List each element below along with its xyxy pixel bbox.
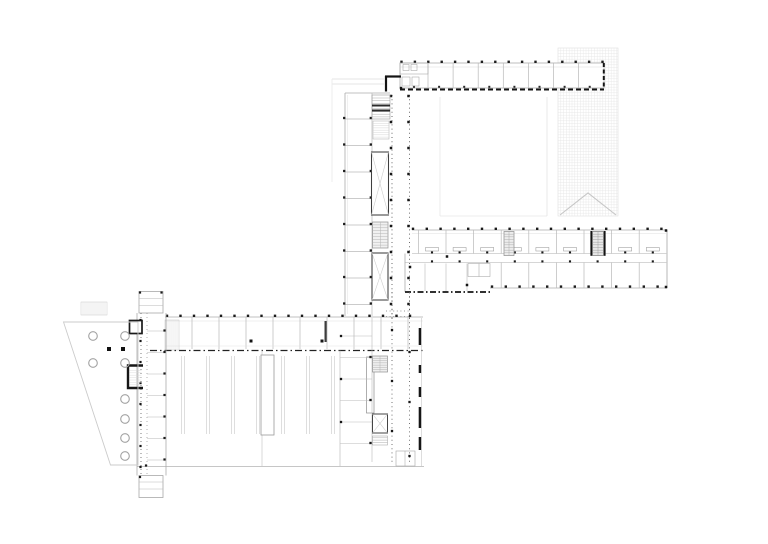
column-ticks xyxy=(587,285,589,287)
jamb-ticks xyxy=(163,394,165,396)
corridor-piers xyxy=(597,260,599,262)
column-ticks xyxy=(453,228,455,230)
piers xyxy=(466,284,469,287)
east-pier-wall xyxy=(419,387,422,397)
bench-row xyxy=(646,248,659,252)
jamb-ticks xyxy=(163,415,165,417)
corridor-piers xyxy=(569,260,571,262)
corridor-piers xyxy=(431,251,433,253)
corridor-piers xyxy=(514,260,516,262)
north-wing-door-jambs xyxy=(463,86,465,88)
jamb-ticks xyxy=(343,196,345,198)
layer-south-band xyxy=(150,315,423,351)
column-ticks xyxy=(260,315,262,317)
jamb-ticks xyxy=(343,170,345,172)
column-ticks xyxy=(601,285,603,287)
corridor-piers xyxy=(390,121,393,124)
column-ticks xyxy=(179,315,181,317)
north-wing-door-jambs xyxy=(488,86,490,88)
column-ticks xyxy=(619,228,621,230)
column-ticks xyxy=(605,228,607,230)
piers xyxy=(145,464,147,466)
shelving-core xyxy=(372,95,390,119)
corridor-piers xyxy=(624,251,626,253)
north-wing-column-ticks xyxy=(601,61,603,63)
jamb-ticks xyxy=(163,329,165,331)
jamb-ticks xyxy=(370,249,372,251)
column-ticks xyxy=(233,315,235,317)
pier xyxy=(400,87,402,89)
north-wing-door-jambs xyxy=(564,86,566,88)
corridor-piers xyxy=(407,199,410,202)
piers xyxy=(369,442,371,444)
column-ticks xyxy=(328,315,330,317)
column-ticks xyxy=(206,315,208,317)
layer-east-wing xyxy=(405,228,667,292)
column-ticks xyxy=(577,228,579,230)
bench-row xyxy=(453,248,466,252)
piers xyxy=(391,329,393,331)
column-ticks xyxy=(368,315,370,317)
jamb-ticks xyxy=(343,249,345,251)
column-ticks xyxy=(574,285,576,287)
corridor-piers xyxy=(459,251,461,253)
column-ticks xyxy=(629,285,631,287)
shelf-bar xyxy=(372,105,390,107)
north-wing-column-ticks xyxy=(548,61,550,63)
corridor-piers xyxy=(486,260,488,262)
jamb-ticks xyxy=(163,437,165,439)
corridor-piers xyxy=(486,251,488,253)
column-ticks xyxy=(660,228,662,230)
column-ticks xyxy=(643,285,645,287)
column-ticks xyxy=(382,315,384,317)
stair-bar xyxy=(325,321,327,342)
corridor-piers xyxy=(407,147,410,150)
column-ticks xyxy=(355,315,357,317)
column-ticks xyxy=(508,228,510,230)
jamb-ticks xyxy=(370,302,372,304)
column-ticks xyxy=(518,285,520,287)
piers xyxy=(340,378,342,380)
corridor-piers xyxy=(407,95,410,98)
corridor-piers xyxy=(652,260,654,262)
column-ticks xyxy=(560,285,562,287)
north-wing-column-ticks xyxy=(467,61,469,63)
bottom-box xyxy=(139,476,163,498)
corridor-piers xyxy=(541,260,543,262)
plaza-columns xyxy=(121,359,130,368)
column-ticks xyxy=(220,315,222,317)
corridor-piers xyxy=(407,225,410,228)
column-ticks xyxy=(532,285,534,287)
plaza-solid-columns xyxy=(121,347,125,351)
column-ticks xyxy=(546,285,548,287)
north-wing-column-ticks xyxy=(494,61,496,63)
column-ticks xyxy=(193,315,195,317)
service-box xyxy=(373,436,388,445)
floor-plan-drawing xyxy=(0,0,768,544)
jamb-ticks xyxy=(163,458,165,460)
north-wing-column-ticks xyxy=(575,61,577,63)
north-wing-column-ticks xyxy=(481,61,483,63)
corridor-piers xyxy=(390,225,393,228)
gallery-piers xyxy=(139,466,141,468)
layer-connector xyxy=(386,292,410,318)
column-ticks xyxy=(314,315,316,317)
corridor-piers xyxy=(390,251,393,254)
piers xyxy=(665,286,668,289)
column-ticks xyxy=(395,315,397,317)
north-wing-column-ticks xyxy=(454,61,456,63)
corridor-piers xyxy=(459,260,461,262)
column-ticks xyxy=(615,285,617,287)
bottom-room xyxy=(396,451,415,466)
north-wing-column-ticks xyxy=(561,61,563,63)
jamb-ticks xyxy=(370,117,372,119)
jamb-ticks xyxy=(343,276,345,278)
column-ticks xyxy=(656,285,658,287)
column-ticks xyxy=(536,228,538,230)
corridor-piers xyxy=(569,251,571,253)
piers xyxy=(340,421,342,423)
column-ticks xyxy=(439,228,441,230)
north-wing-column-ticks xyxy=(414,61,416,63)
gallery-piers xyxy=(139,403,141,405)
column-ticks xyxy=(495,228,497,230)
jamb-ticks xyxy=(370,143,372,145)
piers xyxy=(409,266,412,269)
jamb-ticks xyxy=(163,372,165,374)
north-wing-column-ticks xyxy=(521,61,523,63)
corridor-piers xyxy=(431,260,433,262)
column-ticks xyxy=(247,315,249,317)
bench-row xyxy=(536,248,549,252)
column-ticks xyxy=(591,228,593,230)
jamb-ticks xyxy=(343,302,345,304)
jamb-ticks xyxy=(343,143,345,145)
corridor-piers xyxy=(407,251,410,254)
column-ticks xyxy=(409,315,411,317)
column-ticks xyxy=(646,228,648,230)
piers xyxy=(160,291,162,293)
column-ticks xyxy=(467,228,469,230)
bench-row xyxy=(564,248,577,252)
north-wing-door-jambs xyxy=(589,86,591,88)
layer-north-wing xyxy=(400,61,604,90)
column-ticks xyxy=(274,315,276,317)
east-pier-wall xyxy=(419,365,422,373)
piers xyxy=(408,351,410,353)
piers xyxy=(321,340,324,343)
layer-west-vertical-wing xyxy=(343,93,410,318)
east-pier-wall xyxy=(419,437,422,450)
shelf-bar xyxy=(372,110,390,112)
gallery-piers xyxy=(139,445,141,447)
column-ticks xyxy=(287,315,289,317)
column-ticks xyxy=(481,228,483,230)
plaza-columns xyxy=(121,452,130,461)
north-wing-column-ticks xyxy=(427,61,429,63)
north-wing-column-ticks xyxy=(588,61,590,63)
top-box xyxy=(139,292,163,314)
north-wing-column-ticks xyxy=(534,61,536,63)
plaza-trapezoid xyxy=(64,322,139,465)
piers xyxy=(408,455,410,457)
piers xyxy=(665,229,668,232)
north-wing-door-jambs xyxy=(438,86,440,88)
piers xyxy=(250,340,253,343)
corridor-piers xyxy=(390,277,393,280)
jamb-ticks xyxy=(343,223,345,225)
north-wing-door-jambs xyxy=(539,86,541,88)
bench-row xyxy=(619,248,632,252)
corridor-piers xyxy=(407,121,410,124)
corridor-piers xyxy=(390,199,393,202)
piers xyxy=(391,380,393,382)
column-ticks xyxy=(633,228,635,230)
piers xyxy=(369,399,371,401)
floor-plan-page xyxy=(0,0,768,544)
plaza-columns xyxy=(89,332,98,341)
column-ticks xyxy=(550,228,552,230)
east-pier-wall xyxy=(419,328,422,345)
piers xyxy=(139,291,141,293)
plaza-columns xyxy=(121,415,130,424)
corridor-piers xyxy=(390,173,393,176)
corridor-piers xyxy=(541,251,543,253)
column-ticks xyxy=(505,285,507,287)
bench-row xyxy=(481,248,494,252)
layer-plaza xyxy=(64,322,139,465)
column-ticks xyxy=(301,315,303,317)
piers xyxy=(391,430,393,432)
jamb-ticks xyxy=(343,117,345,119)
jamb-ticks xyxy=(163,351,165,353)
gallery-piers xyxy=(139,361,141,363)
corridor-piers xyxy=(407,173,410,176)
gallery-piers xyxy=(139,424,141,426)
north-wing-door-jambs xyxy=(513,86,515,88)
piers xyxy=(139,476,141,478)
column-ticks xyxy=(491,285,493,287)
corridor-piers xyxy=(652,251,654,253)
plaza-solid-columns xyxy=(107,347,111,351)
north-wing-column-ticks xyxy=(508,61,510,63)
column-ticks xyxy=(341,315,343,317)
plaza-columns xyxy=(121,434,130,443)
bench-row xyxy=(426,248,439,252)
east-pier-wall xyxy=(419,407,422,428)
jamb-ticks xyxy=(370,223,372,225)
piers xyxy=(340,335,342,337)
plaza-columns xyxy=(89,359,98,368)
piers xyxy=(446,255,449,258)
corridor-piers xyxy=(624,260,626,262)
column-ticks xyxy=(412,228,414,230)
corridor-piers xyxy=(390,147,393,150)
plaza-columns xyxy=(121,332,130,341)
hall-long-element xyxy=(261,355,274,435)
gallery-piers xyxy=(139,340,141,342)
piers xyxy=(369,356,371,358)
column-ticks xyxy=(564,228,566,230)
north-wing-column-ticks xyxy=(400,61,402,63)
layer-courtyard xyxy=(440,97,547,216)
plaza-columns xyxy=(121,395,130,404)
column-ticks xyxy=(426,228,428,230)
column-ticks xyxy=(522,228,524,230)
corridor-piers xyxy=(407,277,410,280)
piers xyxy=(408,401,410,403)
north-wing-column-ticks xyxy=(441,61,443,63)
